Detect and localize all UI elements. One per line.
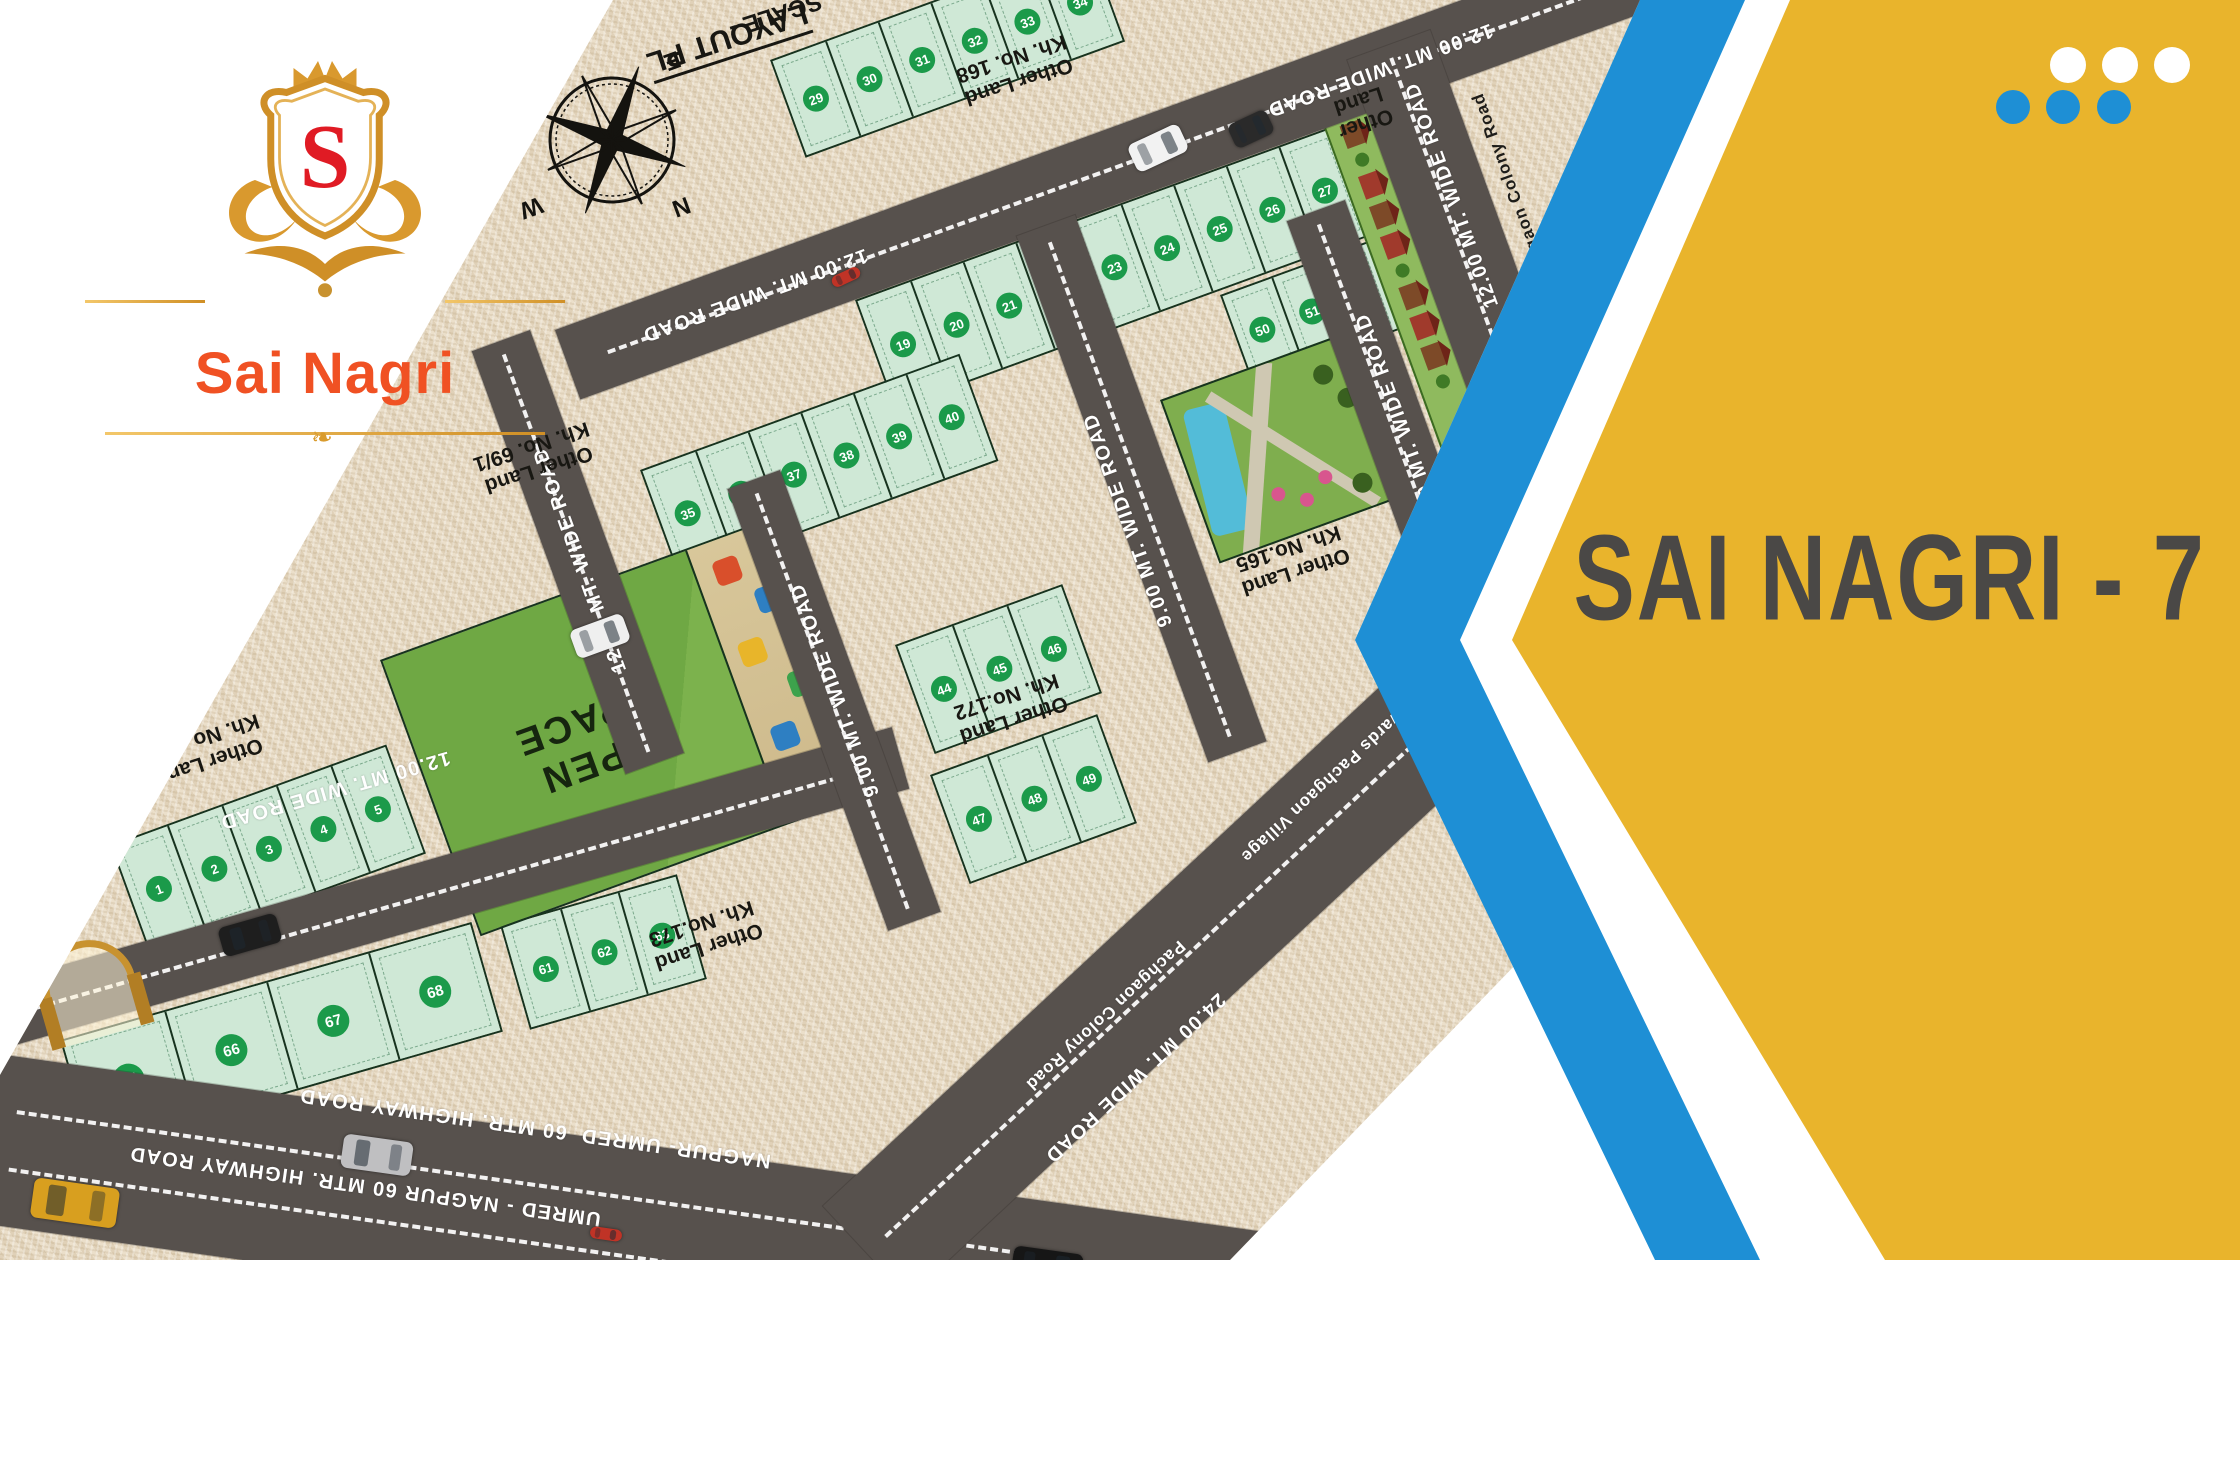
plot-number-badge: 20 [940,308,973,341]
deco-dot-white [2102,47,2138,83]
plot-number-badge: 48 [1018,782,1051,815]
tree-icon [1310,362,1336,388]
plot-number-badge: 34 [1063,0,1096,19]
plot-number-badge: 3 [252,832,285,865]
plot-number-badge: 21 [993,289,1026,322]
garden-path [1242,362,1272,563]
plot-number-badge: 45 [983,652,1016,685]
plot-number-badge: 2 [198,852,231,885]
plot-number-badge: 4 [307,812,340,845]
plot-number-badge: 5 [361,793,394,826]
svg-text:S: S [300,106,351,207]
deco-dot-white [2050,47,2086,83]
area-label: Other Land Kh. No. 69/2 [141,709,270,791]
house-icon [1369,200,1396,229]
deco-dot-blue [1996,90,2030,124]
plot-number-badge: 32 [958,24,991,57]
house-icon [1420,341,1447,370]
plot-number-badge: 25 [1203,212,1236,245]
plot-row: 353637383940 [640,354,998,577]
plot-number-badge: 61 [530,952,562,984]
plot-number-badge: 50 [1246,313,1279,346]
plot-row: 293031323334 [770,0,1125,158]
plot-number-badge: 40 [935,401,968,434]
plot-number-badge: 49 [1072,762,1105,795]
logo-rule-right [445,300,565,303]
house-icon [1409,311,1436,340]
plot-number-badge: 26 [1256,193,1289,226]
plot-number-badge: 24 [1150,231,1183,264]
logo-flourish-icon: ❧ [85,422,565,453]
plot-number-badge: 46 [1037,632,1070,665]
playground-toy-icon [711,554,744,587]
project-title: SAI NAGRI - 7 [1565,498,2215,658]
house-icon [1358,170,1385,199]
plot-number-badge: 38 [830,439,863,472]
plot-number-badge: 23 [1098,251,1131,284]
plot-number-badge: 62 [588,936,620,968]
plot-number-badge: 67 [314,1001,354,1041]
plot-number-badge: 30 [853,62,886,95]
tree-icon [1434,372,1452,390]
plot-number-badge: 68 [415,972,455,1012]
plot-number-badge: 39 [882,420,915,453]
deco-dot-white [2154,47,2190,83]
plot-number-badge: 19 [886,328,919,361]
plot-number-badge: 33 [1011,5,1044,38]
tree-icon [1353,151,1371,169]
crest-shield-icon: S [220,55,430,305]
tree-icon [1394,262,1412,280]
house-icon [1380,230,1407,259]
plot-number-badge: 66 [212,1030,252,1070]
plot-number-badge: 1 [142,872,175,905]
deco-dot-blue [2046,90,2080,124]
plot-number-badge: 31 [905,43,938,76]
flower-bed-icon [1298,491,1316,509]
plot-number-badge: 29 [799,82,832,115]
plot-number-badge: 35 [671,497,704,530]
deco-dot-blue [2097,90,2131,124]
house-icon [1398,281,1425,310]
brand-name: Sai Nagri [85,340,565,407]
playground-toy-icon [769,719,802,752]
flower-bed-icon [1269,485,1287,503]
brand-logo: S Sai Nagri ❧ [85,40,565,470]
playground-toy-icon [736,635,769,668]
project-title-text: SAI NAGRI - 7 [1574,508,2206,648]
road [0,1050,1772,1472]
plot-number-badge: 47 [962,802,995,835]
logo-rule-left [85,300,205,303]
